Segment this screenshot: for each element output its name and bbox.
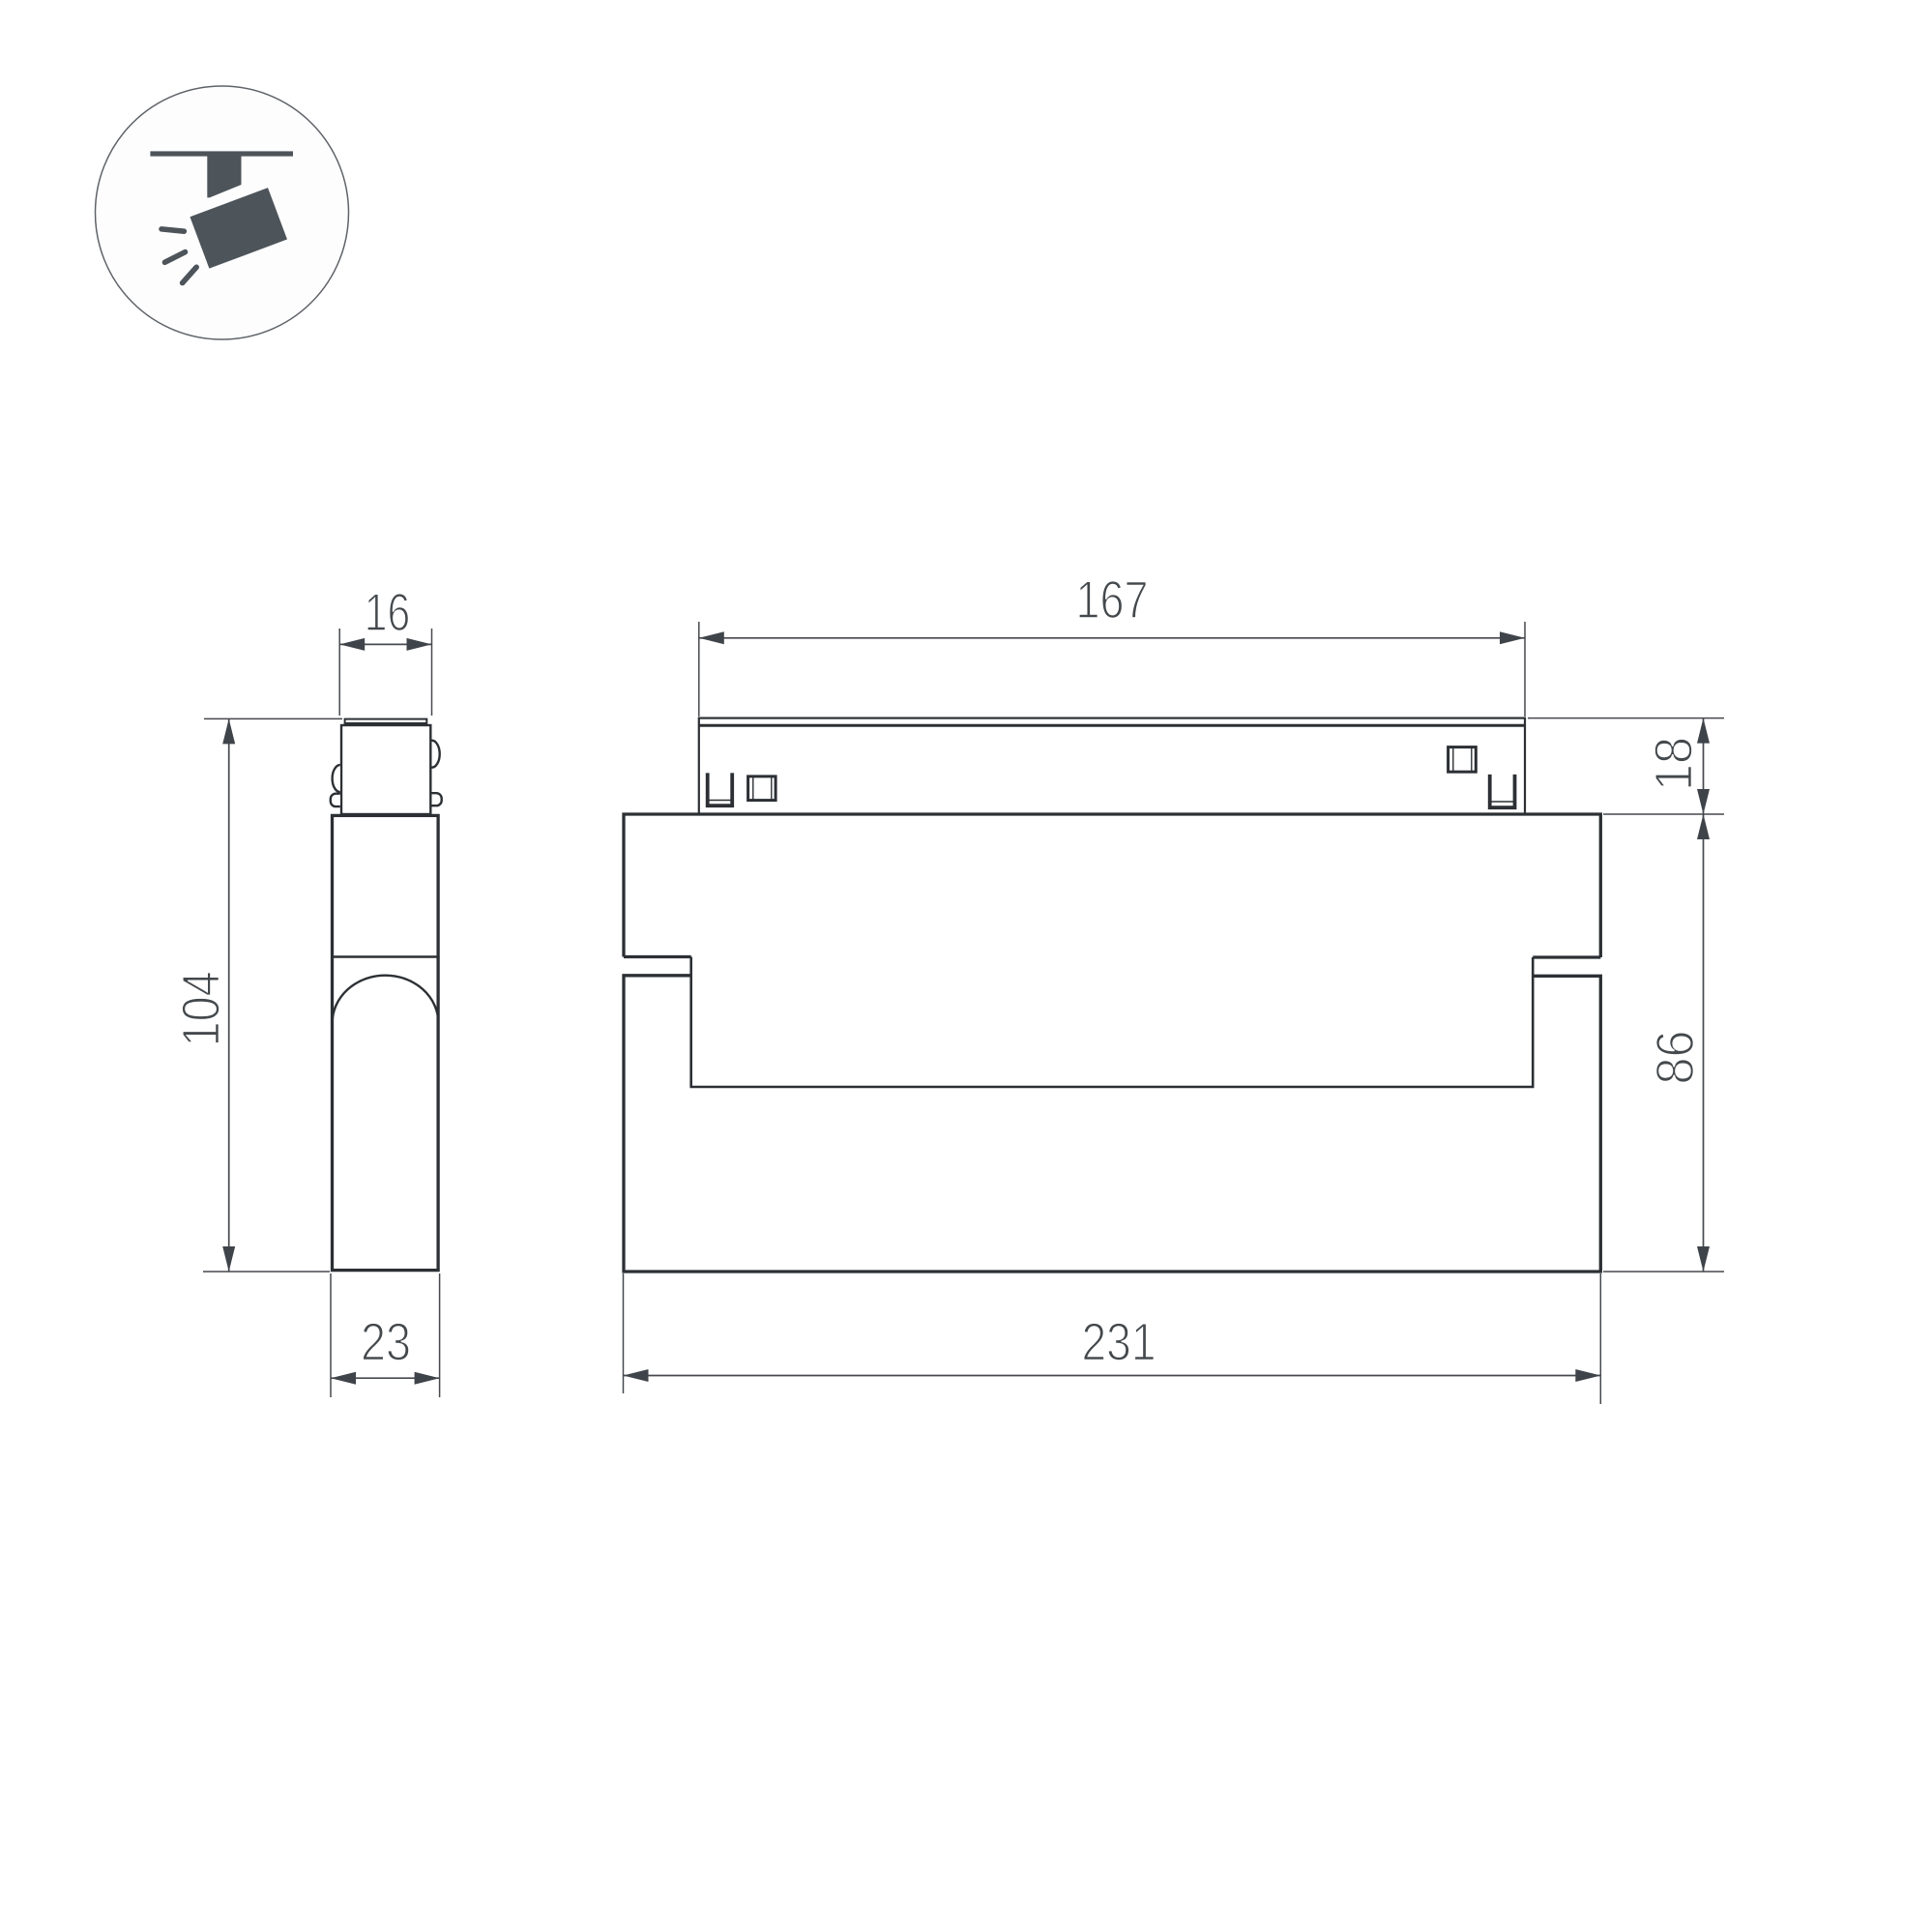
- svg-text:86: 86: [1645, 1031, 1705, 1085]
- svg-text:23: 23: [361, 1311, 411, 1371]
- svg-text:16: 16: [365, 582, 411, 642]
- svg-text:104: 104: [171, 971, 231, 1046]
- svg-text:167: 167: [1076, 570, 1149, 629]
- svg-text:231: 231: [1082, 1312, 1156, 1372]
- svg-text:18: 18: [1644, 737, 1704, 791]
